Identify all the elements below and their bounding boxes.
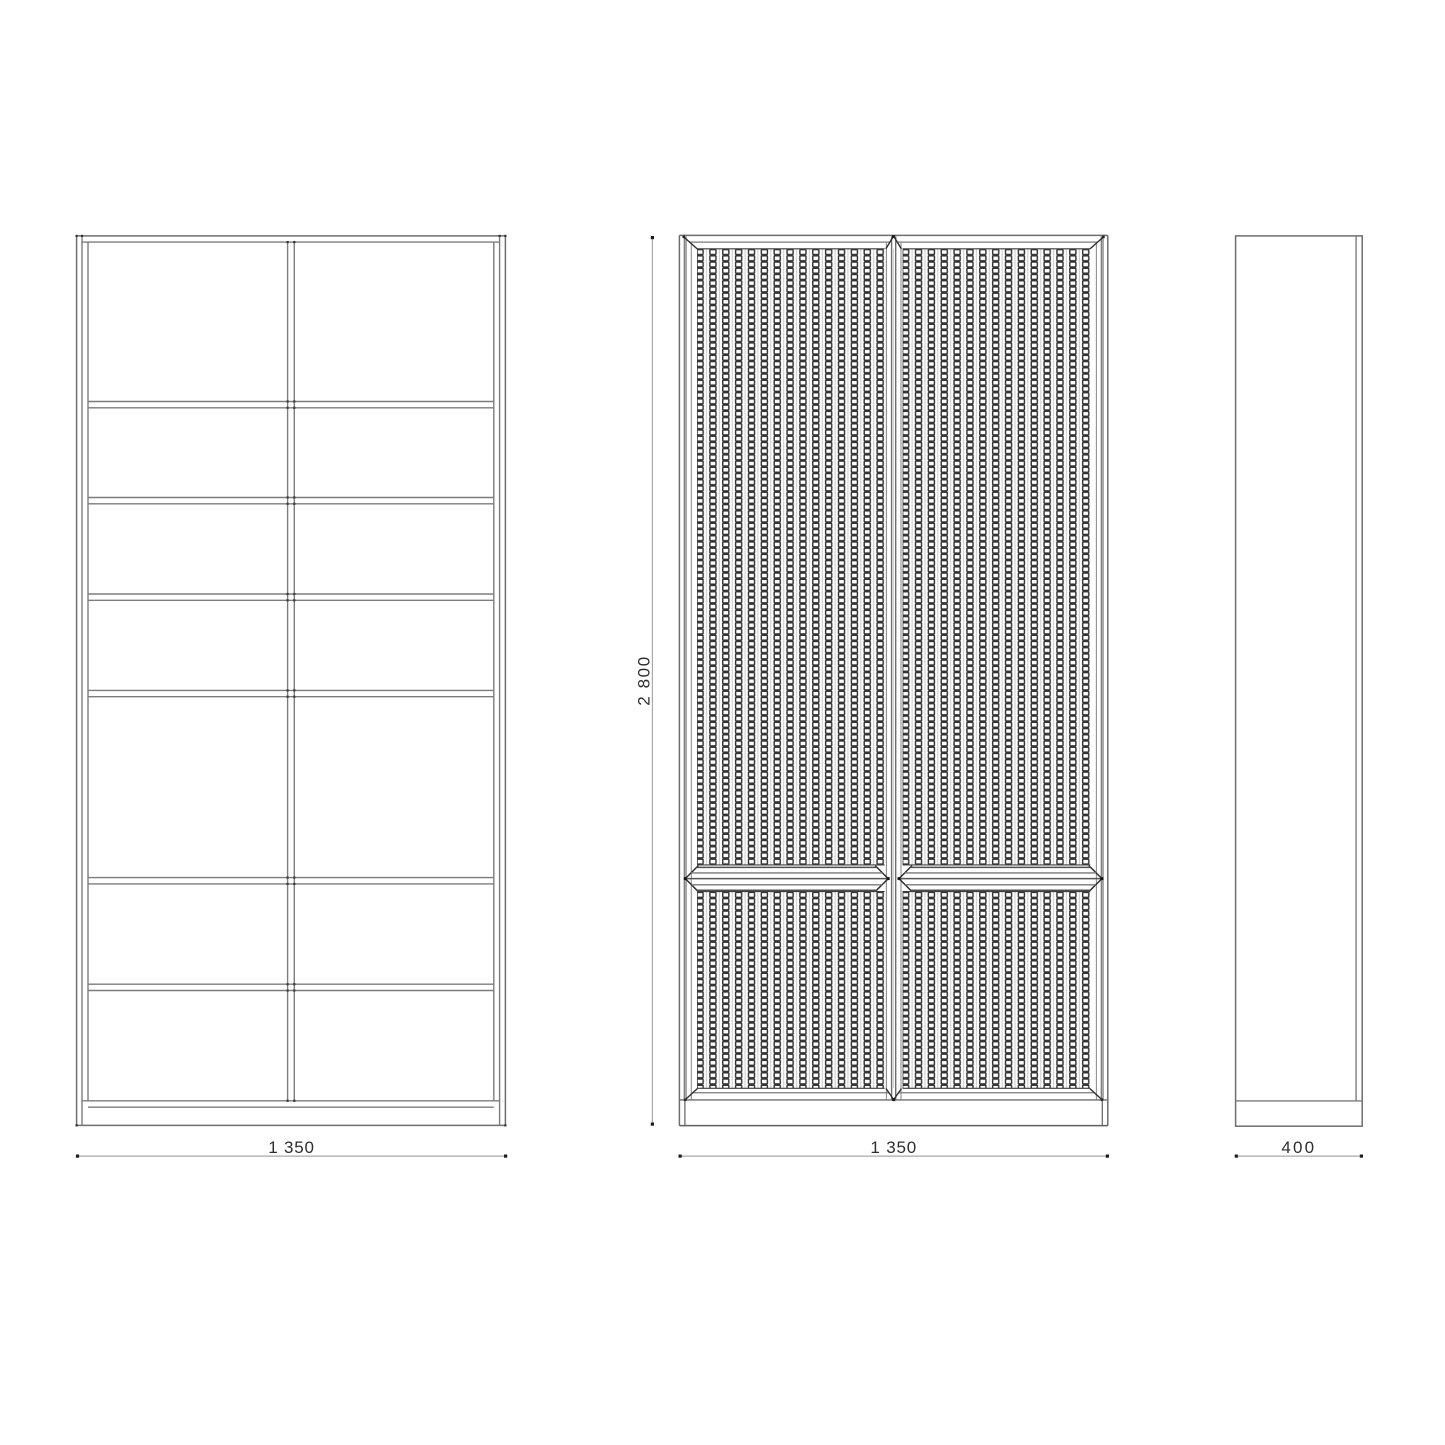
svg-text:1 350: 1 350 bbox=[870, 1138, 917, 1157]
svg-text:400: 400 bbox=[1281, 1138, 1316, 1157]
svg-text:2 800: 2 800 bbox=[635, 655, 654, 706]
svg-text:1 350: 1 350 bbox=[268, 1138, 315, 1157]
